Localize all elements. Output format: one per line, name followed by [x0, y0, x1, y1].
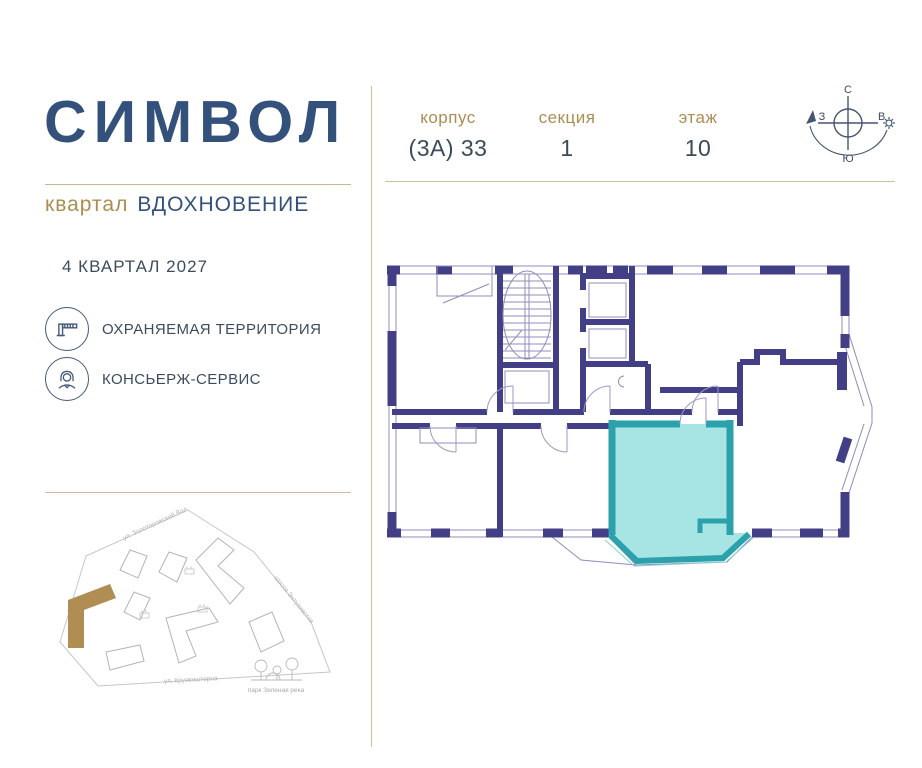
- feature-concierge: КОНСЬЕРЖ-СЕРВИС: [45, 357, 261, 401]
- field-section: секция 1: [513, 108, 621, 162]
- field-floor-label: этаж: [641, 108, 755, 128]
- elevator-door-gap: [579, 332, 587, 348]
- street-label-top: ул. Золоторожский Вал: [121, 505, 188, 542]
- plan-fixtures: [420, 266, 624, 443]
- brand-logo: СИМВОЛ: [44, 88, 347, 156]
- site-highlighted-building[interactable]: [68, 584, 116, 648]
- field-building: корпус (3А) 33: [385, 108, 511, 162]
- header-divider: [385, 181, 895, 182]
- compass-west-label: З: [819, 111, 826, 123]
- field-section-value: 1: [513, 135, 621, 162]
- field-building-label: корпус: [385, 108, 511, 128]
- site-map: ул. Золоторожский Вал шоссе Энтузиастов …: [46, 500, 350, 714]
- apartment-door-arc: [680, 398, 706, 424]
- field-building-value: (3А) 33: [385, 135, 511, 162]
- apartment-highlight[interactable]: [605, 398, 753, 566]
- field-section-label: секция: [513, 108, 621, 128]
- field-floor-value: 10: [641, 135, 755, 162]
- field-floor: этаж 10: [641, 108, 755, 162]
- floorplan-card: { "brand": { "title": "СИМВОЛ", "distric…: [0, 0, 922, 768]
- site-buildings: [106, 538, 284, 670]
- compass-south-label: Ю: [842, 153, 853, 165]
- compass-arrow: [806, 110, 816, 124]
- completion-date: 4 КВАРТАЛ 2027: [62, 257, 208, 277]
- compass-east-label: В: [878, 111, 885, 123]
- floor-plan: [385, 258, 882, 570]
- street-label-right: шоссе Энтузиастов: [272, 575, 315, 625]
- feature-guarded-territory: ОХРАНЯЕМАЯ ТЕРРИТОРИЯ: [45, 307, 321, 351]
- feature-label: ОХРАНЯЕМАЯ ТЕРРИТОРИЯ: [102, 321, 321, 338]
- district-line: кварталВДОХНОВЕНИЕ: [45, 193, 309, 217]
- barrier-icon: [45, 307, 89, 351]
- stairs: [503, 271, 551, 359]
- left-panel-divider: [45, 492, 351, 493]
- street-label-bottom: ул. Крузенштерна: [164, 675, 218, 685]
- concierge-icon: [45, 357, 89, 401]
- park-label: парк Зеленая река: [248, 687, 305, 694]
- district-label: квартал: [45, 193, 128, 216]
- logo-divider: [45, 184, 351, 185]
- district-name: ВДОХНОВЕНИЕ: [137, 193, 309, 216]
- vertical-divider: [371, 86, 372, 747]
- compass-north-label: С: [844, 84, 852, 96]
- feature-label: КОНСЬЕРЖ-СЕРВИС: [102, 371, 261, 388]
- elevator-door-gap: [579, 290, 587, 308]
- compass-icon: С З В Ю: [798, 84, 898, 176]
